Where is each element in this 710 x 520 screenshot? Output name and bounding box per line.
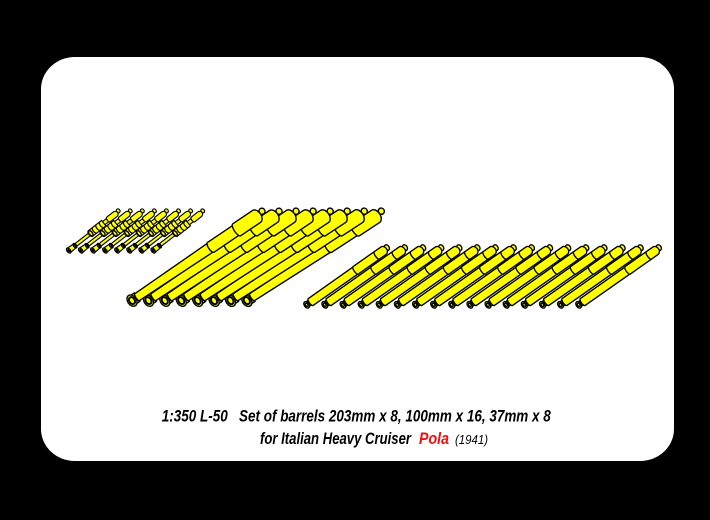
svg-text:for Italian Heavy Cruiser: for Italian Heavy Cruiser (260, 430, 412, 448)
svg-text:1:350 L-50 Set of barrels 20: 1:350 L-50 Set of barrels 203mm x 8, 100… (162, 407, 552, 425)
svg-text:Pola: Pola (419, 430, 449, 448)
svg-text:(1941): (1941) (455, 433, 488, 447)
